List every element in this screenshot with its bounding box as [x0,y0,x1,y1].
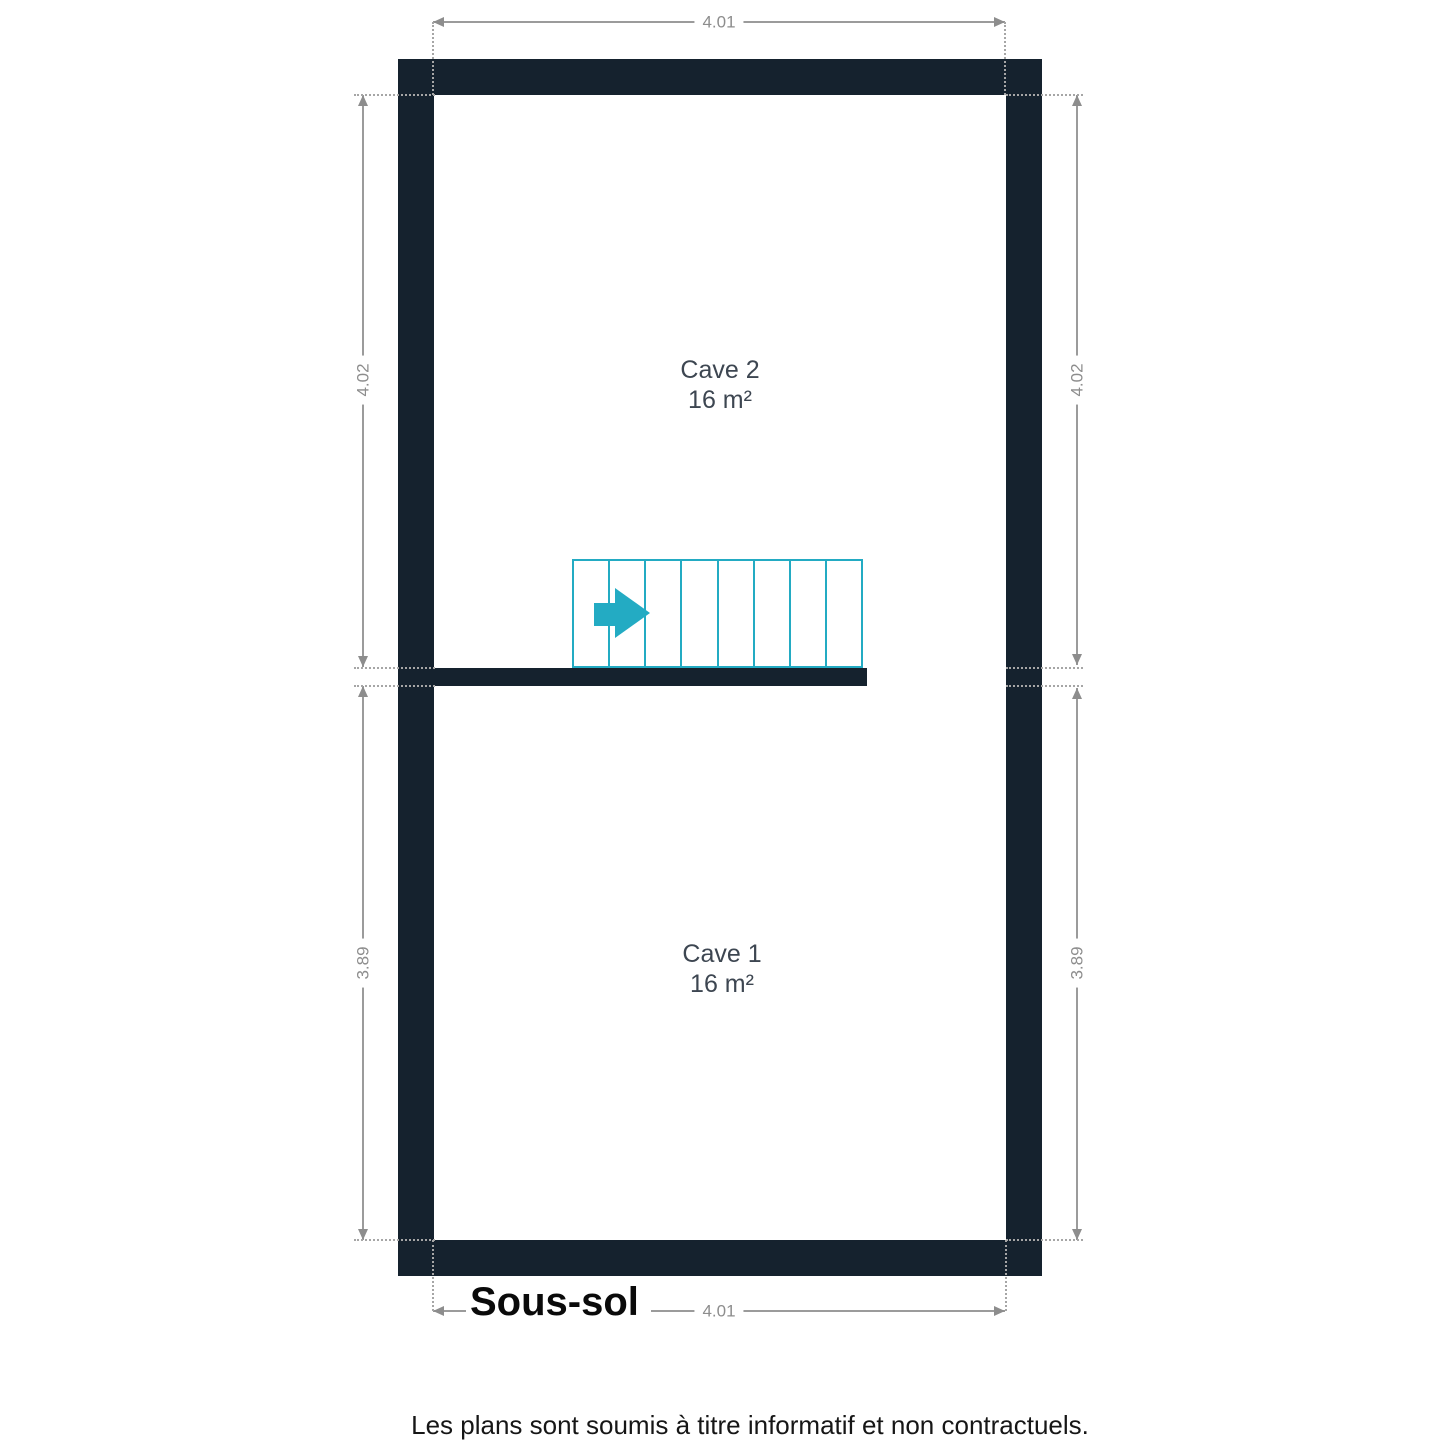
stair-step [755,561,791,666]
dimension-arrow-icon [433,17,444,27]
wall-divider [398,668,867,686]
dimension-value-top: 4.01 [694,11,743,34]
room-name: Cave 1 [682,940,761,970]
extension-line [354,685,435,687]
room-label-cave2: Cave 2 16 m² [680,356,759,415]
room-name: Cave 2 [680,356,759,386]
floor-plan: Cave 2 16 m² Cave 1 16 m² 4.01 4.01 4.02… [0,0,1440,1440]
extension-line [432,22,434,95]
dimension-arrow-icon [358,95,368,106]
floor-title: Sous-sol [466,1280,651,1326]
dimension-value-bottom: 4.01 [694,1300,743,1323]
dimension-arrow-icon [1072,95,1082,106]
stair-step [827,561,861,666]
extension-line [1006,667,1083,669]
stair-direction-arrow-icon [588,585,654,641]
extension-line [1006,685,1083,687]
extension-line [354,94,435,96]
dimension-value-left-upper: 4.02 [352,355,375,404]
room-label-cave1: Cave 1 16 m² [682,940,761,999]
dimension-arrow-icon [358,686,368,697]
dimension-arrow-icon [1072,654,1082,665]
wall-top [398,59,1042,95]
disclaimer-text: Les plans sont soumis à titre informatif… [411,1410,1089,1440]
dimension-arrow-icon [994,1306,1005,1316]
extension-line [432,1240,434,1311]
stair-step [719,561,755,666]
dimension-arrow-icon [1072,688,1082,699]
room-area: 16 m² [680,386,759,416]
stair-step [682,561,718,666]
extension-line [1005,1240,1007,1311]
extension-line [1006,94,1083,96]
extension-line [1004,22,1006,95]
extension-line [354,667,435,669]
dimension-arrow-icon [358,656,368,667]
room-area: 16 m² [682,970,761,1000]
extension-line [354,1239,435,1241]
dimension-arrow-icon [433,1306,444,1316]
wall-bottom [398,1240,1042,1276]
dimension-value-left-lower: 3.89 [352,938,375,987]
extension-line [1006,1239,1083,1241]
dimension-value-right-lower: 3.89 [1066,938,1089,987]
dimension-value-right-upper: 4.02 [1066,355,1089,404]
stair-step [791,561,827,666]
